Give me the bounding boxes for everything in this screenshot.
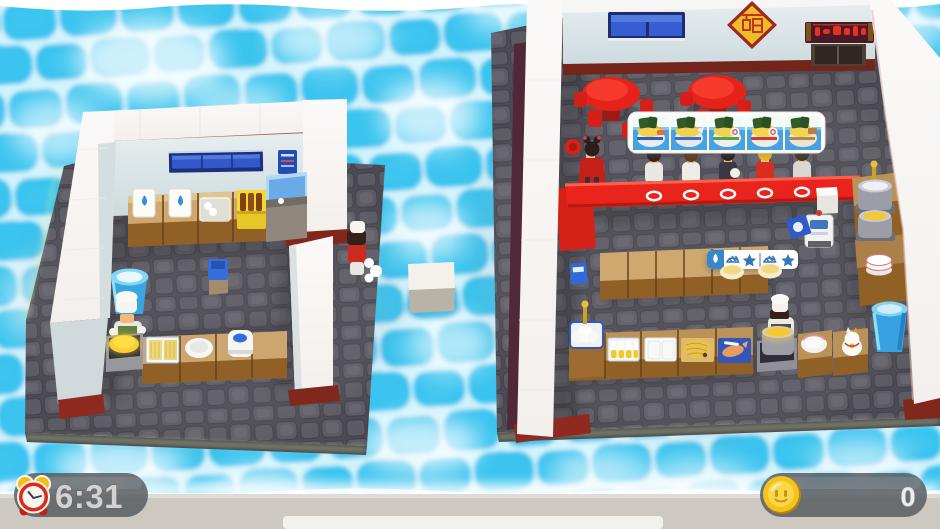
svg-text:0: 0 xyxy=(900,482,915,512)
svg-text:6:31: 6:31 xyxy=(55,478,123,515)
